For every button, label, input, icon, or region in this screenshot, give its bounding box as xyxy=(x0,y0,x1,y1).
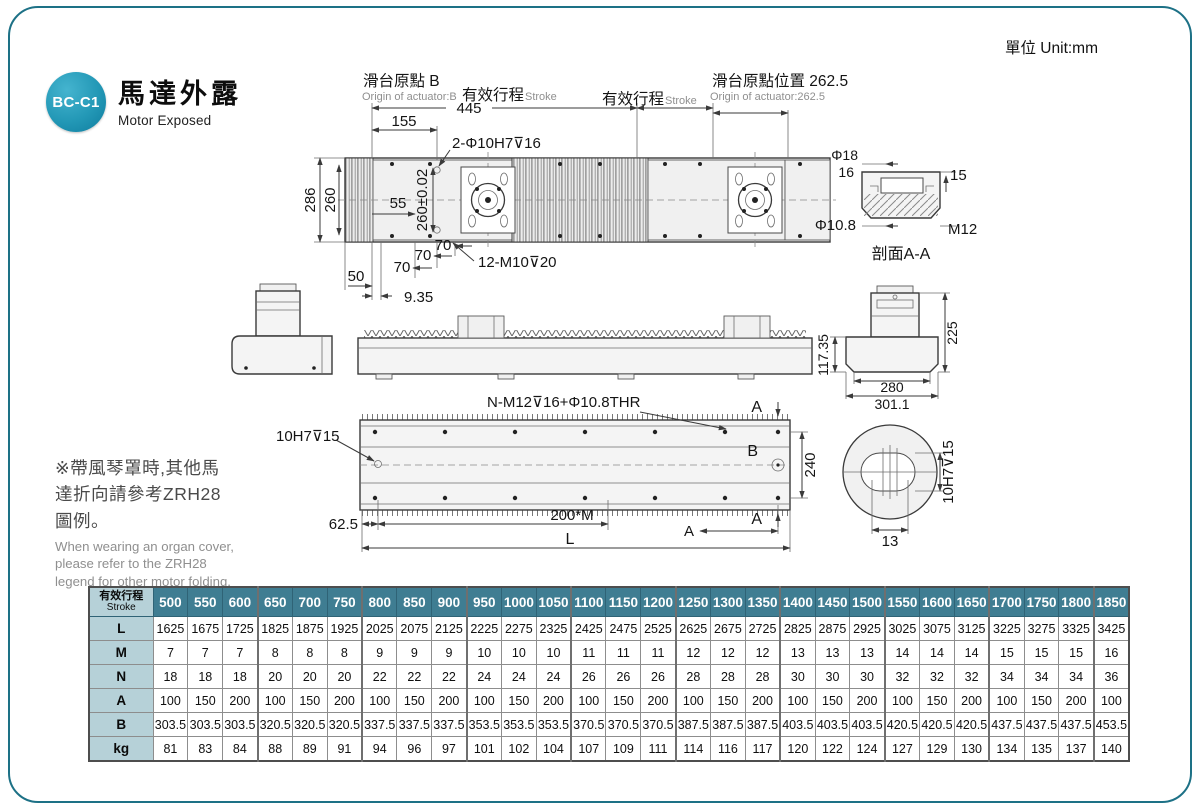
stroke-column-header: 1750 xyxy=(1024,587,1059,617)
bearing-block-1 xyxy=(461,167,515,233)
dim-62-5: 62.5 xyxy=(329,516,358,533)
origin-b-zh: 滑台原點 B xyxy=(363,72,440,90)
value-cell: 15 xyxy=(1059,641,1094,665)
value-cell: 150 xyxy=(188,689,223,713)
stroke-column-header: 750 xyxy=(327,587,362,617)
value-cell: 1825 xyxy=(258,617,293,641)
dim-70b: 70 xyxy=(415,247,432,264)
value-cell: 20 xyxy=(327,665,362,689)
value-cell: 3425 xyxy=(1094,617,1129,641)
value-cell: 403.5 xyxy=(780,713,815,737)
top-view: 445 155 滑台原點 B Origin of actuator:B 有效行程… xyxy=(302,72,848,306)
dim-70a: 70 xyxy=(394,259,411,276)
value-cell: 150 xyxy=(711,689,746,713)
value-cell: 94 xyxy=(362,737,397,762)
value-cell: 12 xyxy=(745,641,780,665)
stroke-header-row: 有效行程Stroke500550600650700750800850900950… xyxy=(89,587,1129,617)
row-label: L xyxy=(89,617,153,641)
value-cell: 2425 xyxy=(571,617,606,641)
value-cell: 28 xyxy=(676,665,711,689)
row-label: M xyxy=(89,641,153,665)
value-cell: 34 xyxy=(1059,665,1094,689)
dim-240: 240 xyxy=(802,452,819,477)
value-cell: 13 xyxy=(780,641,815,665)
value-cell: 420.5 xyxy=(885,713,920,737)
value-cell: 2725 xyxy=(745,617,780,641)
value-cell: 100 xyxy=(571,689,606,713)
value-cell: 9 xyxy=(362,641,397,665)
value-cell: 303.5 xyxy=(188,713,223,737)
value-cell: 10 xyxy=(536,641,571,665)
value-cell: 353.5 xyxy=(536,713,571,737)
value-cell: 2825 xyxy=(780,617,815,641)
value-cell: 34 xyxy=(989,665,1024,689)
value-cell: 320.5 xyxy=(327,713,362,737)
value-cell: 150 xyxy=(606,689,641,713)
bottom-view: N-M12⊽16+Φ10.8THR 10H7⊽15 62.5 200*M L A… xyxy=(276,394,819,552)
note-zh-line: 達折向請參考ZRH28 xyxy=(55,481,297,507)
dim-286: 286 xyxy=(302,187,319,212)
note-en-line: When wearing an organ cover, xyxy=(55,538,297,556)
value-cell: 200 xyxy=(432,689,467,713)
stroke-column-header: 500 xyxy=(153,587,188,617)
value-cell: 11 xyxy=(641,641,676,665)
value-cell: 320.5 xyxy=(292,713,327,737)
value-cell: 200 xyxy=(954,689,989,713)
value-cell: 91 xyxy=(327,737,362,762)
section-mark-a-bottom: A xyxy=(751,511,762,528)
value-cell: 12 xyxy=(676,641,711,665)
dim-50: 50 xyxy=(348,268,365,285)
stroke-column-header: 1600 xyxy=(920,587,955,617)
stroke-column-header: 650 xyxy=(258,587,293,617)
value-cell: 122 xyxy=(815,737,850,762)
origin-pos-en: Origin of actuator:262.5 xyxy=(710,91,825,103)
dim-260-tol: 260±0.02 xyxy=(414,169,431,231)
value-cell: 10 xyxy=(501,641,536,665)
dim-55: 55 xyxy=(390,195,407,212)
value-cell: 28 xyxy=(745,665,780,689)
value-cell: 1675 xyxy=(188,617,223,641)
value-cell: 387.5 xyxy=(676,713,711,737)
value-cell: 200 xyxy=(1059,689,1094,713)
stroke-column-header: 1000 xyxy=(501,587,536,617)
value-cell: 2525 xyxy=(641,617,676,641)
value-cell: 15 xyxy=(989,641,1024,665)
stroke-column-header: 950 xyxy=(467,587,502,617)
value-cell: 200 xyxy=(850,689,885,713)
value-cell: 81 xyxy=(153,737,188,762)
value-cell: 16 xyxy=(1094,641,1129,665)
value-cell: 150 xyxy=(397,689,432,713)
section-mark-a-top: A xyxy=(751,399,762,416)
value-cell: 150 xyxy=(292,689,327,713)
value-cell: 437.5 xyxy=(989,713,1024,737)
table-row: M777888999101010111111121212131313141414… xyxy=(89,641,1129,665)
side-view-left xyxy=(232,284,332,374)
value-cell: 10 xyxy=(467,641,502,665)
row-label: B xyxy=(89,713,153,737)
value-cell: 30 xyxy=(780,665,815,689)
value-cell: 320.5 xyxy=(258,713,293,737)
value-cell: 7 xyxy=(153,641,188,665)
value-cell: 88 xyxy=(258,737,293,762)
value-cell: 28 xyxy=(711,665,746,689)
value-cell: 2875 xyxy=(815,617,850,641)
stroke-column-header: 1500 xyxy=(850,587,885,617)
value-cell: 9 xyxy=(397,641,432,665)
value-cell: 403.5 xyxy=(815,713,850,737)
value-cell: 117 xyxy=(745,737,780,762)
hole-callout: 2-Φ10H7⊽16 xyxy=(452,135,541,152)
value-cell: 20 xyxy=(292,665,327,689)
dim-260: 260 xyxy=(322,187,339,212)
value-cell: 137 xyxy=(1059,737,1094,762)
value-cell: 116 xyxy=(711,737,746,762)
value-cell: 107 xyxy=(571,737,606,762)
table-row: L162516751725182518751925202520752125222… xyxy=(89,617,1129,641)
stroke-column-header: 1400 xyxy=(780,587,815,617)
section-aa-view: Φ18 16 15 Φ10.8 M12 剖面A-A xyxy=(815,147,977,263)
stroke-column-header: 800 xyxy=(362,587,397,617)
stroke-column-header: 1200 xyxy=(641,587,676,617)
value-cell: 24 xyxy=(536,665,571,689)
value-cell: 370.5 xyxy=(571,713,606,737)
value-cell: 15 xyxy=(1024,641,1059,665)
value-cell: 1725 xyxy=(223,617,258,641)
value-cell: 18 xyxy=(153,665,188,689)
spec-table-wrap: 有效行程Stroke500550600650700750800850900950… xyxy=(88,586,1130,762)
stroke1-en: Stroke xyxy=(525,91,557,103)
value-cell: 387.5 xyxy=(745,713,780,737)
row-label: A xyxy=(89,689,153,713)
value-cell: 353.5 xyxy=(501,713,536,737)
stroke-column-header: 1100 xyxy=(571,587,606,617)
dim-70c: 70 xyxy=(435,237,452,254)
value-cell: 9 xyxy=(432,641,467,665)
stroke2-en: Stroke xyxy=(665,95,697,107)
origin-pos-zh: 滑台原點位置 262.5 xyxy=(712,72,848,90)
stroke-column-header: 1350 xyxy=(745,587,780,617)
value-cell: 36 xyxy=(1094,665,1129,689)
value-cell: 420.5 xyxy=(920,713,955,737)
value-cell: 11 xyxy=(606,641,641,665)
value-cell: 11 xyxy=(571,641,606,665)
stroke-column-header: 700 xyxy=(292,587,327,617)
value-cell: 2075 xyxy=(397,617,432,641)
table-row: B303.5303.5303.5320.5320.5320.5337.5337.… xyxy=(89,713,1129,737)
value-cell: 2925 xyxy=(850,617,885,641)
dim-15: 15 xyxy=(950,167,967,184)
dim-m12: M12 xyxy=(948,221,977,238)
value-cell: 84 xyxy=(223,737,258,762)
table-row: A100150200100150200100150200100150200100… xyxy=(89,689,1129,713)
value-cell: 200 xyxy=(536,689,571,713)
stroke-column-header: 1300 xyxy=(711,587,746,617)
value-cell: 100 xyxy=(1094,689,1129,713)
value-cell: 100 xyxy=(467,689,502,713)
value-cell: 30 xyxy=(850,665,885,689)
dim-200m: 200*M xyxy=(550,507,593,524)
value-cell: 130 xyxy=(954,737,989,762)
value-cell: 150 xyxy=(1024,689,1059,713)
value-cell: 453.5 xyxy=(1094,713,1129,737)
value-cell: 12 xyxy=(711,641,746,665)
value-cell: 3025 xyxy=(885,617,920,641)
value-cell: 22 xyxy=(432,665,467,689)
value-cell: 200 xyxy=(641,689,676,713)
dim-117-35: 117.35 xyxy=(815,334,831,376)
value-cell: 14 xyxy=(885,641,920,665)
value-cell: 26 xyxy=(571,665,606,689)
value-cell: 3075 xyxy=(920,617,955,641)
value-cell: 26 xyxy=(641,665,676,689)
value-cell: 1875 xyxy=(292,617,327,641)
value-cell: 1925 xyxy=(327,617,362,641)
bearing-block-2 xyxy=(728,167,782,233)
value-cell: 353.5 xyxy=(467,713,502,737)
value-cell: 114 xyxy=(676,737,711,762)
value-cell: 18 xyxy=(188,665,223,689)
value-cell: 134 xyxy=(989,737,1024,762)
value-cell: 14 xyxy=(920,641,955,665)
bottom-hole-callout: N-M12⊽16+Φ10.8THR xyxy=(487,394,641,411)
value-cell: 1625 xyxy=(153,617,188,641)
stroke1-zh: 有效行程 xyxy=(462,86,524,104)
value-cell: 32 xyxy=(920,665,955,689)
value-cell: 2325 xyxy=(536,617,571,641)
dim-13: 13 xyxy=(882,533,899,550)
value-cell: 100 xyxy=(153,689,188,713)
value-cell: 2275 xyxy=(501,617,536,641)
note-zh-line: ※帶風琴罩時,其他馬 xyxy=(55,455,297,481)
dim-225: 225 xyxy=(944,321,960,345)
value-cell: 437.5 xyxy=(1024,713,1059,737)
stroke-column-header: 1250 xyxy=(676,587,711,617)
value-cell: 420.5 xyxy=(954,713,989,737)
stroke-column-header: 1650 xyxy=(954,587,989,617)
value-cell: 337.5 xyxy=(397,713,432,737)
stroke-column-header: 850 xyxy=(397,587,432,617)
stroke-header-corner: 有效行程Stroke xyxy=(89,587,153,617)
value-cell: 13 xyxy=(850,641,885,665)
note-block: ※帶風琴罩時,其他馬 達折向請參考ZRH28 圖例。 When wearing … xyxy=(55,455,297,591)
side-view-long xyxy=(358,316,812,379)
value-cell: 7 xyxy=(223,641,258,665)
value-cell: 403.5 xyxy=(850,713,885,737)
value-cell: 129 xyxy=(920,737,955,762)
stroke-column-header: 1800 xyxy=(1059,587,1094,617)
dim-phi10-8: Φ10.8 xyxy=(815,217,856,234)
value-cell: 100 xyxy=(989,689,1024,713)
value-cell: 370.5 xyxy=(641,713,676,737)
dim-a: A xyxy=(684,523,694,540)
value-cell: 97 xyxy=(432,737,467,762)
value-cell: 7 xyxy=(188,641,223,665)
stroke2-zh: 有效行程 xyxy=(602,90,664,108)
value-cell: 2625 xyxy=(676,617,711,641)
value-cell: 2475 xyxy=(606,617,641,641)
stroke-column-header: 1550 xyxy=(885,587,920,617)
value-cell: 387.5 xyxy=(711,713,746,737)
note-zh-line: 圖例。 xyxy=(55,508,297,534)
dim-301-1: 301.1 xyxy=(874,396,909,412)
value-cell: 303.5 xyxy=(223,713,258,737)
value-cell: 102 xyxy=(501,737,536,762)
value-cell: 18 xyxy=(223,665,258,689)
value-cell: 3225 xyxy=(989,617,1024,641)
value-cell: 337.5 xyxy=(362,713,397,737)
row-label: N xyxy=(89,665,153,689)
origin-b-en: Origin of actuator:B xyxy=(362,91,457,103)
value-cell: 200 xyxy=(223,689,258,713)
value-cell: 100 xyxy=(362,689,397,713)
value-cell: 22 xyxy=(397,665,432,689)
dim-280: 280 xyxy=(880,379,904,395)
value-cell: 2675 xyxy=(711,617,746,641)
value-cell: 96 xyxy=(397,737,432,762)
value-cell: 120 xyxy=(780,737,815,762)
value-cell: 22 xyxy=(362,665,397,689)
value-cell: 3325 xyxy=(1059,617,1094,641)
stroke-column-header: 1700 xyxy=(989,587,1024,617)
table-row: kg81838488899194969710110210410710911111… xyxy=(89,737,1129,762)
value-cell: 20 xyxy=(258,665,293,689)
value-cell: 100 xyxy=(258,689,293,713)
value-cell: 8 xyxy=(258,641,293,665)
value-cell: 200 xyxy=(327,689,362,713)
stroke-table: 有效行程Stroke500550600650700750800850900950… xyxy=(88,586,1130,762)
value-cell: 8 xyxy=(292,641,327,665)
pin-callout: 10H7⊽15 xyxy=(276,428,340,445)
value-cell: 100 xyxy=(780,689,815,713)
value-cell: 24 xyxy=(501,665,536,689)
value-cell: 100 xyxy=(676,689,711,713)
value-cell: 337.5 xyxy=(432,713,467,737)
stroke-column-header: 1050 xyxy=(536,587,571,617)
value-cell: 2025 xyxy=(362,617,397,641)
value-cell: 100 xyxy=(885,689,920,713)
datasheet-page: 單位 Unit:mm BC-C1 馬達外露 Motor Exposed xyxy=(0,0,1200,809)
value-cell: 3275 xyxy=(1024,617,1059,641)
value-cell: 83 xyxy=(188,737,223,762)
section-caption: 剖面A-A xyxy=(872,245,931,263)
value-cell: 2225 xyxy=(467,617,502,641)
value-cell: 8 xyxy=(327,641,362,665)
table-row: N181818202020222222242424262626282828303… xyxy=(89,665,1129,689)
value-cell: 303.5 xyxy=(153,713,188,737)
value-cell: 370.5 xyxy=(606,713,641,737)
value-cell: 124 xyxy=(850,737,885,762)
stroke-column-header: 1150 xyxy=(606,587,641,617)
dim-9-35: 9.35 xyxy=(404,289,433,306)
value-cell: 101 xyxy=(467,737,502,762)
value-cell: 30 xyxy=(815,665,850,689)
row-label: kg xyxy=(89,737,153,762)
value-cell: 2125 xyxy=(432,617,467,641)
stroke-column-header: 900 xyxy=(432,587,467,617)
value-cell: 150 xyxy=(920,689,955,713)
value-cell: 140 xyxy=(1094,737,1129,762)
stroke-column-header: 1850 xyxy=(1094,587,1129,617)
value-cell: 104 xyxy=(536,737,571,762)
origin-point-b: B xyxy=(747,443,758,460)
value-cell: 34 xyxy=(1024,665,1059,689)
value-cell: 32 xyxy=(954,665,989,689)
detail-pin-callout: 10H7⊽15 xyxy=(940,440,957,504)
stroke-column-header: 1450 xyxy=(815,587,850,617)
value-cell: 135 xyxy=(1024,737,1059,762)
value-cell: 109 xyxy=(606,737,641,762)
stroke-column-header: 550 xyxy=(188,587,223,617)
value-cell: 32 xyxy=(885,665,920,689)
value-cell: 437.5 xyxy=(1059,713,1094,737)
value-cell: 127 xyxy=(885,737,920,762)
value-cell: 24 xyxy=(467,665,502,689)
detail-view: 13 10H7⊽15 xyxy=(843,425,957,550)
dim-phi18: Φ18 xyxy=(831,147,858,163)
value-cell: 14 xyxy=(954,641,989,665)
end-view: 117.35 225 280 301.1 xyxy=(815,286,960,412)
dim-l: L xyxy=(566,531,575,548)
value-cell: 200 xyxy=(745,689,780,713)
value-cell: 89 xyxy=(292,737,327,762)
value-cell: 150 xyxy=(501,689,536,713)
dim-155: 155 xyxy=(391,113,416,130)
dim-16: 16 xyxy=(838,164,854,180)
thread-callout: 12-M10⊽20 xyxy=(478,254,557,271)
stroke-column-header: 600 xyxy=(223,587,258,617)
value-cell: 150 xyxy=(815,689,850,713)
value-cell: 26 xyxy=(606,665,641,689)
value-cell: 111 xyxy=(641,737,676,762)
value-cell: 3125 xyxy=(954,617,989,641)
note-en-line: please refer to the ZRH28 xyxy=(55,555,297,573)
value-cell: 13 xyxy=(815,641,850,665)
